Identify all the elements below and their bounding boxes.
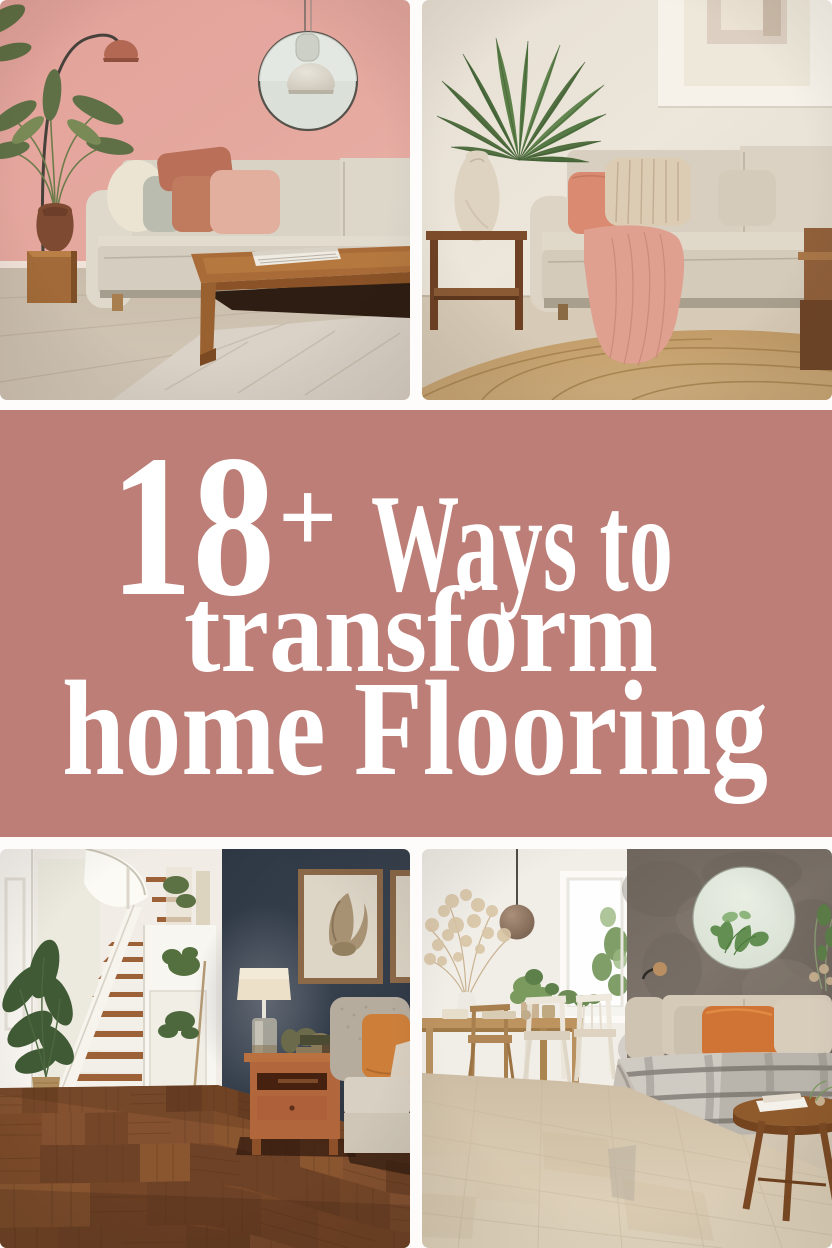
svg-text:+: + bbox=[278, 460, 337, 575]
svg-text:home Flooring: home Flooring bbox=[62, 654, 768, 804]
